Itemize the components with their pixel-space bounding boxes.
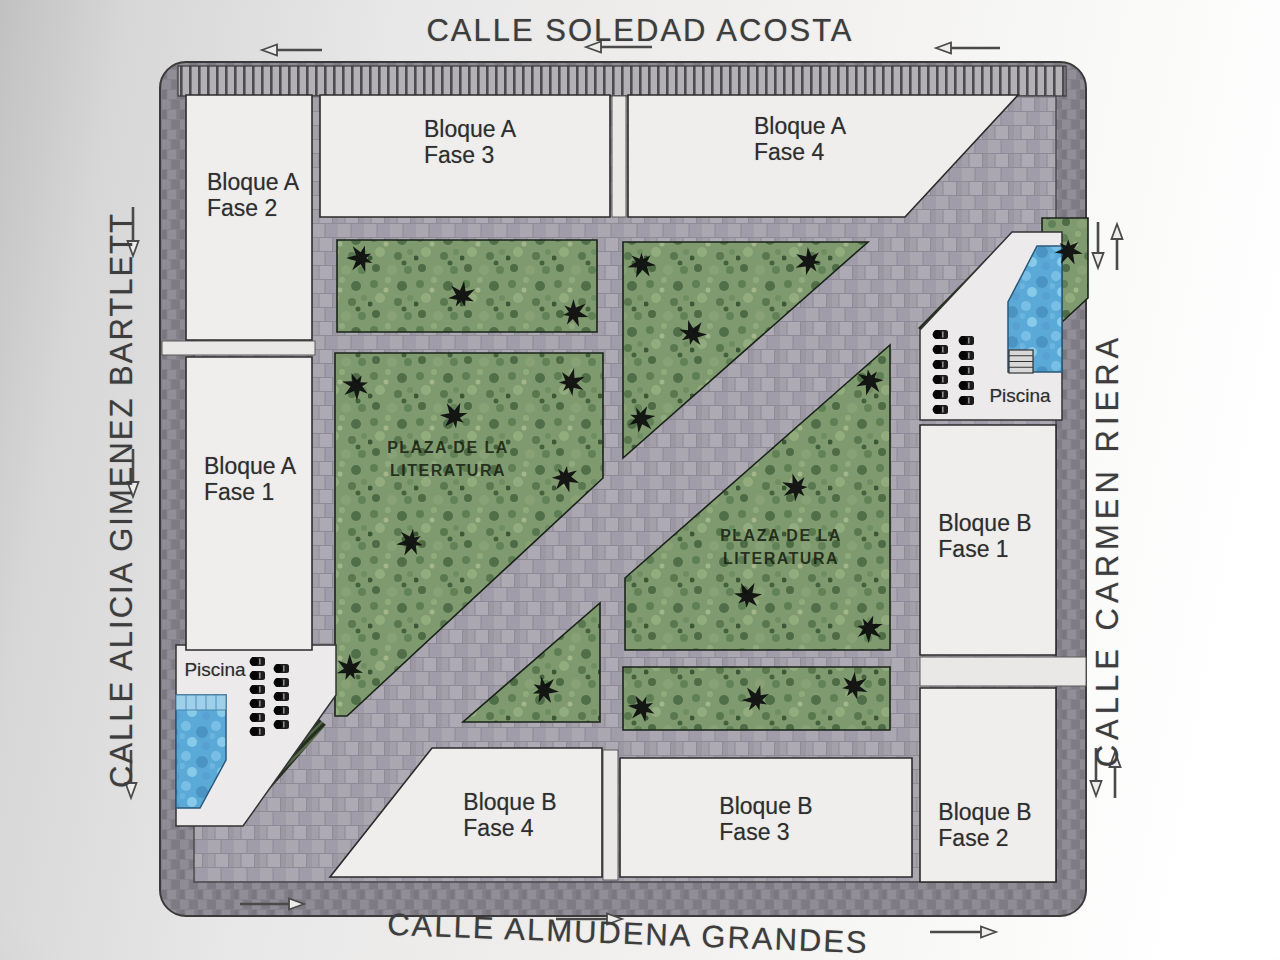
- green-top-left: [337, 240, 597, 332]
- sun-lounger-icon: [959, 381, 974, 390]
- traffic-direction-arrow-icon: [930, 927, 996, 938]
- traffic-direction-arrow-icon: [128, 207, 139, 256]
- sun-lounger-icon: [274, 706, 289, 715]
- sun-lounger-icon: [250, 657, 265, 666]
- building-bloque-a-fase-3: [320, 95, 610, 217]
- building-bloque-b-fase-2: [920, 688, 1056, 882]
- sun-lounger-icon: [274, 692, 289, 701]
- traffic-direction-arrow-icon: [262, 45, 322, 56]
- traffic-direction-arrow-icon: [1112, 224, 1123, 270]
- sun-lounger-icon: [959, 396, 974, 405]
- traffic-direction-arrow-icon: [1110, 752, 1121, 798]
- sun-lounger-icon: [959, 351, 974, 360]
- building-bloque-a-fase-1: [186, 357, 312, 650]
- sun-lounger-icon: [933, 405, 948, 414]
- entrance-path-0: [162, 341, 315, 355]
- entrance-path-2: [612, 96, 626, 217]
- pool-area-southwest-pool-steps: [176, 695, 226, 710]
- building-bloque-a-fase-2: [186, 95, 312, 340]
- sun-lounger-icon: [274, 720, 289, 729]
- site-plan-photo: CALLE SOLEDAD ACOSTACALLE ALMUDENA GRAND…: [0, 0, 1280, 960]
- sun-lounger-icon: [250, 685, 265, 694]
- traffic-direction-arrow-icon: [126, 750, 137, 798]
- traffic-direction-arrow-icon: [586, 42, 652, 53]
- sun-lounger-icon: [933, 330, 948, 339]
- sun-lounger-icon: [250, 727, 265, 736]
- sun-lounger-icon: [250, 713, 265, 722]
- site-plan-drawing: [0, 0, 1280, 960]
- sun-lounger-icon: [959, 366, 974, 375]
- entrance-path-1: [920, 657, 1086, 686]
- sun-lounger-icon: [933, 390, 948, 399]
- traffic-direction-arrow-icon: [1091, 748, 1102, 796]
- sun-lounger-icon: [250, 699, 265, 708]
- sun-lounger-icon: [959, 336, 974, 345]
- entrance-path-3: [603, 750, 618, 880]
- hatched-sidewalk-band: [178, 66, 1066, 96]
- traffic-direction-arrow-icon: [936, 43, 1000, 54]
- sun-lounger-icon: [933, 375, 948, 384]
- sun-lounger-icon: [250, 671, 265, 680]
- traffic-direction-arrow-icon: [128, 449, 139, 497]
- sun-lounger-icon: [274, 678, 289, 687]
- building-bloque-b-fase-3: [620, 758, 912, 877]
- building-bloque-b-fase-1: [920, 425, 1056, 655]
- traffic-direction-arrow-icon: [1093, 222, 1104, 268]
- sun-lounger-icon: [274, 664, 289, 673]
- sun-lounger-icon: [933, 345, 948, 354]
- sun-lounger-icon: [933, 360, 948, 369]
